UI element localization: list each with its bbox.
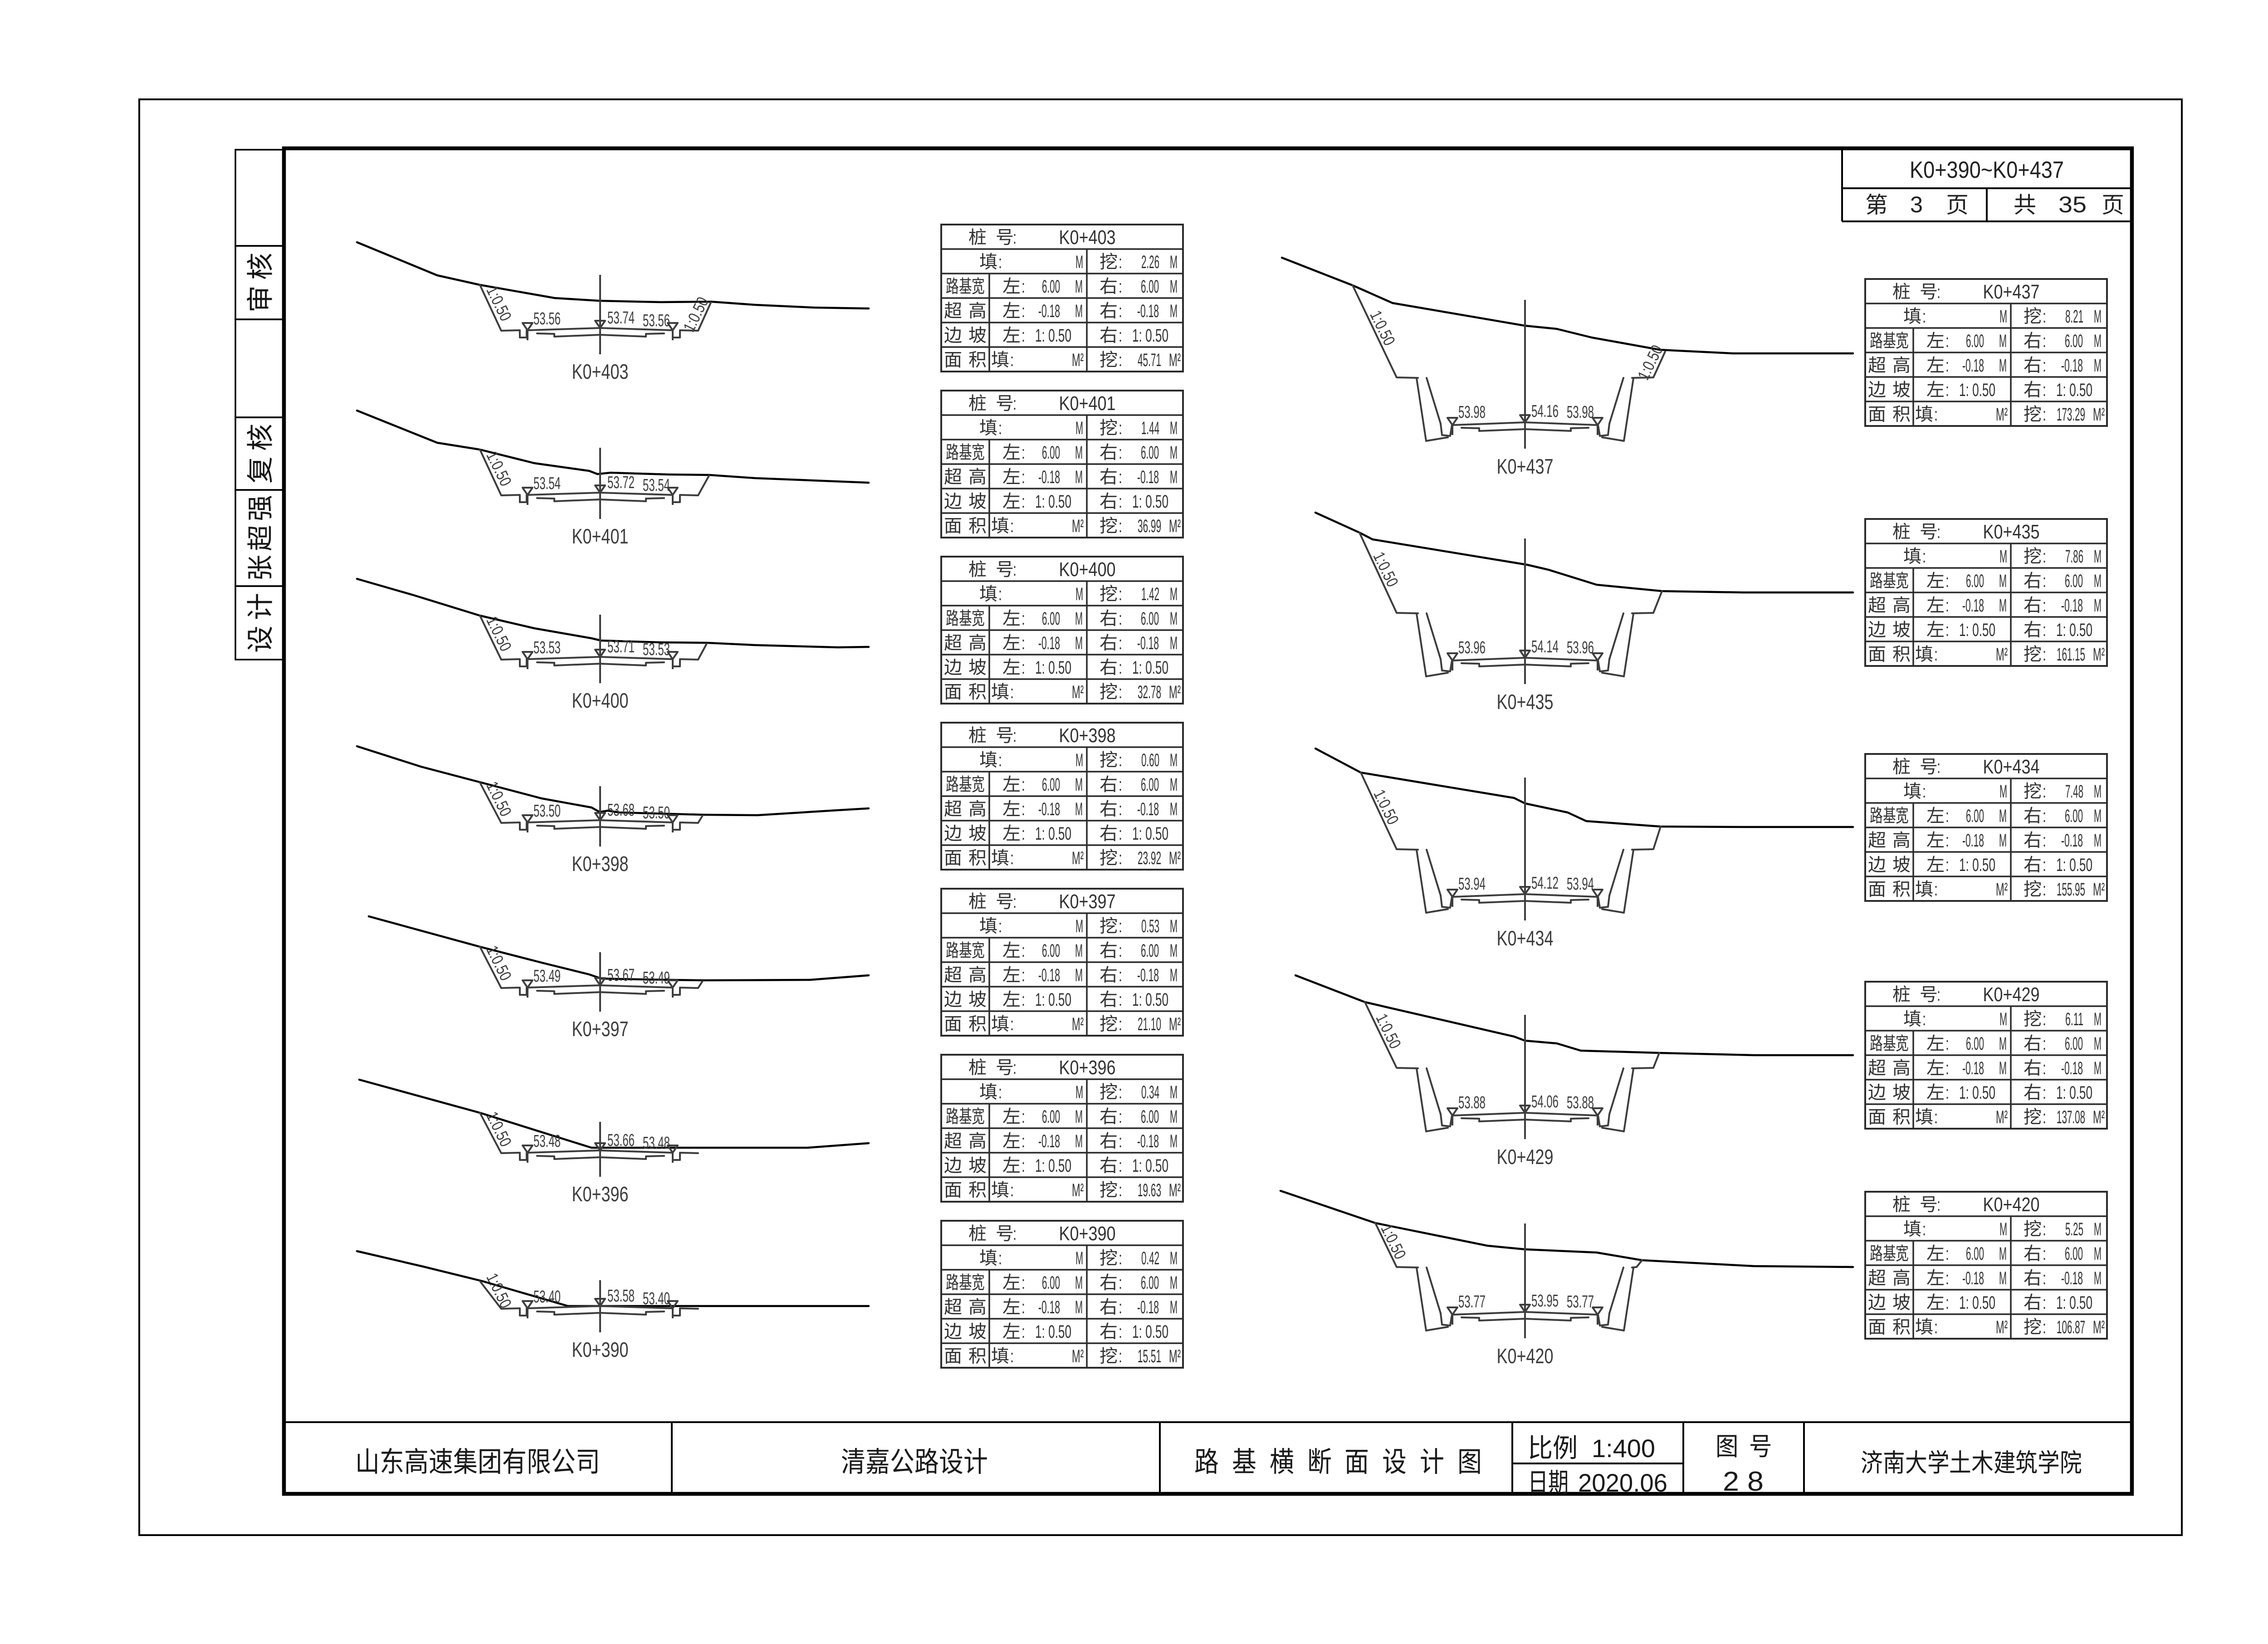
svg-text:-0.18: -0.18: [1962, 596, 1984, 616]
svg-text:M: M: [2094, 806, 2102, 826]
svg-text:53.95: 53.95: [1531, 1292, 1559, 1311]
svg-text::: :: [2043, 380, 2046, 400]
svg-text::: :: [1022, 824, 1025, 844]
svg-text:M: M: [1075, 418, 1083, 438]
svg-text::: :: [2043, 307, 2046, 327]
svg-text::: :: [2043, 880, 2046, 900]
svg-text::: :: [1937, 985, 1941, 1005]
svg-text:K0+403: K0+403: [1059, 226, 1116, 249]
svg-text::: :: [1119, 965, 1122, 985]
svg-text:M: M: [2094, 1058, 2102, 1078]
svg-text:53.68: 53.68: [607, 801, 635, 820]
svg-text::: :: [998, 750, 1002, 770]
svg-text:-0.18: -0.18: [1137, 1131, 1159, 1151]
svg-text:M: M: [1075, 467, 1083, 487]
svg-text::: :: [2043, 782, 2046, 802]
svg-text:M²: M²: [2093, 1317, 2105, 1337]
svg-text::: :: [1119, 848, 1122, 868]
svg-text::: :: [1922, 1009, 1926, 1029]
svg-text::: :: [1119, 492, 1122, 512]
svg-text:-0.18: -0.18: [1137, 633, 1159, 653]
svg-text:M: M: [1999, 1244, 2007, 1264]
svg-text::: :: [1937, 1195, 1941, 1215]
svg-text:M: M: [1170, 584, 1178, 604]
svg-text:M²: M²: [1996, 645, 2008, 665]
svg-text:137.08: 137.08: [2057, 1107, 2085, 1127]
svg-text::: :: [2043, 1058, 2046, 1078]
svg-text::: :: [1022, 326, 1025, 346]
svg-text::: :: [1022, 277, 1025, 297]
svg-text::: :: [1013, 228, 1017, 248]
svg-text:M: M: [1999, 1034, 2007, 1054]
svg-text:53.53: 53.53: [643, 640, 670, 659]
svg-text::: :: [1013, 1058, 1017, 1078]
svg-text:6.00: 6.00: [1966, 806, 1984, 826]
svg-text:6.11: 6.11: [2065, 1009, 2083, 1029]
svg-text:6.00: 6.00: [2065, 331, 2083, 351]
svg-text::: :: [1937, 757, 1941, 777]
svg-text::: :: [1119, 1014, 1122, 1034]
svg-text:7.86: 7.86: [2065, 547, 2083, 567]
svg-text::: :: [2043, 405, 2046, 425]
svg-text:1: 0.50: 1: 0.50: [1035, 492, 1071, 512]
svg-text:6.00: 6.00: [2065, 806, 2083, 826]
svg-text:M: M: [1075, 443, 1083, 463]
svg-text:6.00: 6.00: [2065, 1244, 2083, 1264]
svg-text:K0+429: K0+429: [1497, 1145, 1554, 1169]
svg-text:M: M: [1999, 331, 2007, 351]
svg-text:M: M: [1075, 609, 1083, 629]
svg-text:53.71: 53.71: [607, 637, 635, 656]
svg-text:K0+398: K0+398: [572, 852, 629, 876]
svg-text:0.60: 0.60: [1141, 750, 1159, 770]
svg-text:1: 0.50: 1: 0.50: [1035, 824, 1071, 844]
svg-text:173.29: 173.29: [2057, 405, 2085, 425]
svg-text::: :: [1022, 965, 1025, 985]
svg-text::: :: [1119, 1107, 1122, 1127]
svg-text:M: M: [1170, 750, 1178, 770]
svg-text:-0.18: -0.18: [1137, 799, 1159, 819]
svg-text::: :: [1119, 916, 1122, 936]
svg-text:M²: M²: [1169, 682, 1181, 702]
svg-text:53.53: 53.53: [533, 638, 561, 657]
svg-text:K0+434: K0+434: [1497, 926, 1554, 950]
svg-text:M: M: [2094, 331, 2102, 351]
svg-text:1: 0.50: 1: 0.50: [1959, 380, 1995, 400]
svg-text::: :: [1013, 726, 1017, 746]
svg-text:M: M: [1170, 1273, 1178, 1293]
svg-text::: :: [1119, 467, 1122, 487]
svg-text:-0.18: -0.18: [1038, 1297, 1060, 1317]
svg-text:M: M: [1999, 596, 2007, 616]
svg-text:M²: M²: [1072, 848, 1084, 868]
svg-text:-0.18: -0.18: [1962, 1268, 1984, 1288]
svg-text:K0+396: K0+396: [1059, 1057, 1116, 1079]
svg-text:1: 0.50: 1: 0.50: [1035, 326, 1071, 346]
svg-text:6.00: 6.00: [1042, 443, 1060, 463]
svg-text:7.48: 7.48: [2065, 782, 2083, 802]
svg-text:M: M: [1170, 301, 1178, 321]
svg-text:K0+397: K0+397: [572, 1017, 629, 1041]
svg-text::: :: [1013, 560, 1017, 580]
svg-text::: :: [1022, 799, 1025, 819]
svg-text:1: 0.50: 1: 0.50: [1132, 492, 1168, 512]
svg-text:M: M: [1170, 799, 1178, 819]
svg-text::: :: [2043, 1009, 2046, 1029]
svg-text:1: 0.50: 1: 0.50: [1132, 824, 1168, 844]
svg-text:35: 35: [2058, 192, 2087, 217]
svg-text:M: M: [1999, 1009, 2007, 1029]
svg-text:-0.18: -0.18: [1137, 1297, 1159, 1317]
svg-text:53.96: 53.96: [1567, 638, 1594, 657]
svg-text:K0+401: K0+401: [1059, 392, 1116, 415]
svg-text:M: M: [1170, 633, 1178, 653]
svg-text:5.25: 5.25: [2065, 1219, 2083, 1239]
svg-text:2 8: 2 8: [1723, 1466, 1764, 1497]
svg-text::: :: [1022, 990, 1025, 1010]
svg-text::: :: [1010, 1014, 1014, 1034]
svg-text:6.00: 6.00: [1141, 443, 1159, 463]
svg-text:53.88: 53.88: [1458, 1093, 1486, 1112]
svg-text::: :: [998, 584, 1002, 604]
svg-text:M: M: [1170, 775, 1178, 795]
svg-text:6.00: 6.00: [1042, 1273, 1060, 1293]
svg-text:1: 0.50: 1: 0.50: [2056, 1293, 2092, 1313]
svg-text:6.00: 6.00: [1141, 941, 1159, 961]
svg-text::: :: [1119, 633, 1122, 653]
svg-text:M: M: [2094, 831, 2102, 851]
svg-text:M: M: [1075, 965, 1083, 985]
svg-text::: :: [2043, 806, 2046, 826]
svg-text::: :: [1945, 1083, 1949, 1103]
svg-text:1: 0.50: 1: 0.50: [1132, 990, 1168, 1010]
svg-text:K0+390~K0+437: K0+390~K0+437: [1910, 157, 2064, 183]
svg-text::: :: [1922, 1219, 1926, 1239]
svg-text::: :: [1022, 609, 1025, 629]
svg-text::: :: [2043, 1034, 2046, 1054]
svg-text:M: M: [2094, 1009, 2102, 1029]
svg-text:M²: M²: [1169, 1346, 1181, 1366]
svg-text:1: 0.50: 1: 0.50: [1132, 326, 1168, 346]
svg-text:M: M: [1999, 307, 2007, 327]
svg-text::: :: [1119, 1297, 1122, 1317]
svg-text:6.00: 6.00: [1042, 775, 1060, 795]
svg-text:M²: M²: [1996, 1317, 2008, 1337]
svg-text:53.94: 53.94: [1458, 875, 1486, 894]
svg-text:-0.18: -0.18: [1038, 1131, 1060, 1151]
svg-text::: :: [1022, 941, 1025, 961]
svg-text:-0.18: -0.18: [1962, 831, 1984, 851]
svg-text:M: M: [1075, 750, 1083, 770]
svg-text::: :: [998, 1248, 1002, 1268]
svg-text:M: M: [2094, 1219, 2102, 1239]
svg-text::: :: [1013, 394, 1017, 414]
svg-text:-0.18: -0.18: [2061, 1268, 2083, 1288]
svg-text:19.63: 19.63: [1138, 1180, 1161, 1200]
svg-text::: :: [1945, 1244, 1949, 1264]
svg-text::: :: [1022, 492, 1025, 512]
svg-text::: :: [2043, 1268, 2046, 1288]
svg-text::: :: [2043, 1219, 2046, 1239]
svg-text::: :: [1922, 782, 1926, 802]
svg-text::: :: [1119, 584, 1122, 604]
svg-text::: :: [1119, 658, 1122, 678]
svg-text:M²: M²: [2093, 1107, 2105, 1127]
svg-text:53.48: 53.48: [533, 1132, 561, 1151]
svg-text:M: M: [1075, 633, 1083, 653]
svg-text:1: 0.50: 1: 0.50: [2056, 380, 2092, 400]
svg-text:K0+400: K0+400: [1059, 558, 1116, 581]
svg-text:53.74: 53.74: [607, 308, 635, 328]
svg-text:1: 0.50: 1: 0.50: [2056, 855, 2092, 875]
svg-text:M: M: [1999, 1268, 2007, 1288]
svg-text:1: 0.50: 1: 0.50: [2056, 620, 2092, 640]
svg-text:M: M: [1999, 571, 2007, 591]
svg-text:-0.18: -0.18: [1962, 356, 1984, 376]
svg-text:M: M: [1075, 941, 1083, 961]
svg-text::: :: [1119, 682, 1122, 702]
svg-text:K0+437: K0+437: [1983, 281, 2040, 303]
svg-text:53.77: 53.77: [1458, 1292, 1486, 1311]
svg-text:K0+396: K0+396: [572, 1182, 629, 1206]
svg-text:1.44: 1.44: [1141, 418, 1159, 438]
svg-text:54.16: 54.16: [1531, 402, 1559, 421]
svg-text:54.14: 54.14: [1531, 637, 1559, 656]
svg-text:M: M: [2094, 571, 2102, 591]
svg-text::: :: [1119, 750, 1122, 770]
svg-text::: :: [2043, 331, 2046, 351]
svg-text::: :: [998, 252, 1002, 272]
svg-text::: :: [1945, 331, 1949, 351]
svg-text:M: M: [2094, 596, 2102, 616]
svg-text:-0.18: -0.18: [2061, 1058, 2083, 1078]
svg-text:6.00: 6.00: [1042, 941, 1060, 961]
svg-text::: :: [1119, 443, 1122, 463]
svg-text:54.12: 54.12: [1531, 874, 1559, 893]
svg-text:M: M: [2094, 356, 2102, 376]
svg-text:M: M: [1170, 609, 1178, 629]
svg-text:M: M: [1075, 1131, 1083, 1151]
svg-text:M²: M²: [1072, 350, 1084, 370]
svg-text:2020.06: 2020.06: [1578, 1468, 1667, 1497]
svg-text::: :: [1119, 775, 1122, 795]
svg-text:M: M: [1999, 831, 2007, 851]
svg-text::: :: [1937, 282, 1941, 302]
svg-text::: :: [1022, 1107, 1025, 1127]
svg-text:M: M: [1999, 356, 2007, 376]
svg-text::: :: [1022, 1156, 1025, 1176]
svg-text::: :: [2043, 1244, 2046, 1264]
svg-text:-0.18: -0.18: [1137, 301, 1159, 321]
svg-text::: :: [2043, 1317, 2046, 1337]
svg-text:M: M: [2094, 1244, 2102, 1264]
svg-text:K0+429: K0+429: [1983, 983, 2040, 1006]
svg-text::: :: [2043, 571, 2046, 591]
svg-text:23.92: 23.92: [1138, 848, 1161, 868]
svg-text:53.67: 53.67: [607, 966, 635, 985]
svg-text:53.49: 53.49: [643, 969, 670, 988]
svg-text:M: M: [1170, 252, 1178, 272]
svg-text:M: M: [1170, 941, 1178, 961]
svg-text:6.00: 6.00: [1141, 1107, 1159, 1127]
svg-text:M: M: [1075, 301, 1083, 321]
svg-text:1: 0.50: 1: 0.50: [1132, 658, 1168, 678]
svg-text:M: M: [1075, 1248, 1083, 1268]
svg-text:K0+403: K0+403: [572, 360, 629, 383]
svg-text:15.51: 15.51: [1138, 1346, 1161, 1366]
svg-text::: :: [2043, 547, 2046, 567]
svg-text:1: 0.50: 1: 0.50: [1035, 658, 1071, 678]
svg-text:6.00: 6.00: [2065, 571, 2083, 591]
svg-text:0.53: 0.53: [1141, 916, 1159, 936]
svg-text:M: M: [1999, 806, 2007, 826]
svg-text:M: M: [1075, 1273, 1083, 1293]
svg-text:M: M: [1170, 467, 1178, 487]
svg-text:53.54: 53.54: [643, 476, 670, 495]
svg-text:32.78: 32.78: [1138, 682, 1161, 702]
svg-text::: :: [998, 1082, 1002, 1102]
svg-text::: :: [1119, 1131, 1122, 1151]
svg-text:K0+435: K0+435: [1497, 690, 1554, 714]
svg-text:1: 0.50: 1: 0.50: [2056, 1083, 2092, 1103]
svg-text:-0.18: -0.18: [1038, 633, 1060, 653]
svg-text:M: M: [1170, 916, 1178, 936]
svg-text::: :: [1945, 831, 1949, 851]
svg-text:1: 0.50: 1: 0.50: [1132, 1322, 1168, 1342]
svg-text::: :: [1934, 405, 1938, 425]
svg-text:2.26: 2.26: [1141, 252, 1159, 272]
svg-text:K0+420: K0+420: [1983, 1194, 2040, 1216]
svg-text::: :: [1119, 516, 1122, 536]
svg-text:-0.18: -0.18: [1038, 799, 1060, 819]
svg-text::: :: [1119, 301, 1122, 321]
svg-text:M: M: [2094, 547, 2102, 567]
svg-text::: :: [1945, 1034, 1949, 1054]
svg-text::: :: [1119, 350, 1122, 370]
svg-text:53.58: 53.58: [607, 1287, 635, 1306]
svg-text::: :: [1013, 892, 1017, 912]
svg-text:6.00: 6.00: [1141, 609, 1159, 629]
svg-text:106.87: 106.87: [2057, 1317, 2085, 1337]
svg-text::: :: [998, 418, 1002, 438]
svg-text:K0+435: K0+435: [1983, 521, 2040, 543]
svg-text:6.00: 6.00: [1042, 1107, 1060, 1127]
svg-text::: :: [1010, 1180, 1014, 1200]
svg-text::: :: [1010, 350, 1014, 370]
svg-text::: :: [1022, 1273, 1025, 1293]
svg-text:M²: M²: [2093, 880, 2105, 900]
svg-text:6.00: 6.00: [1966, 571, 1984, 591]
svg-text:M: M: [1170, 965, 1178, 985]
svg-text:M²: M²: [2093, 405, 2105, 425]
svg-text:53.40: 53.40: [533, 1287, 561, 1306]
svg-text:M²: M²: [1072, 516, 1084, 536]
svg-text::: :: [1022, 1297, 1025, 1317]
svg-text::: :: [2043, 1293, 2046, 1313]
svg-text::: :: [1945, 1293, 1949, 1313]
svg-text:K0+401: K0+401: [572, 524, 629, 548]
svg-text:M: M: [1999, 1219, 2007, 1239]
svg-text:6.00: 6.00: [1042, 277, 1060, 297]
svg-text:M²: M²: [1996, 880, 2008, 900]
svg-text:53.94: 53.94: [1567, 875, 1594, 894]
svg-text:M: M: [1075, 1107, 1083, 1127]
svg-text:8.21: 8.21: [2065, 307, 2083, 327]
svg-text:1: 0.50: 1: 0.50: [1959, 620, 1995, 640]
svg-text:-0.18: -0.18: [1137, 467, 1159, 487]
svg-text:M²: M²: [1996, 405, 2008, 425]
svg-text:1: 0.50: 1: 0.50: [1959, 1293, 1995, 1313]
svg-text:-0.18: -0.18: [1962, 1058, 1984, 1078]
svg-text::: :: [2043, 1083, 2046, 1103]
svg-text:M: M: [1170, 1082, 1178, 1102]
svg-text:M²: M²: [1072, 1014, 1084, 1034]
svg-text:-0.18: -0.18: [1038, 467, 1060, 487]
svg-text:K0+400: K0+400: [572, 689, 629, 712]
svg-text::: :: [1119, 1346, 1122, 1366]
svg-text:1: 0.50: 1: 0.50: [1035, 1322, 1071, 1342]
svg-text:-0.18: -0.18: [2061, 356, 2083, 376]
svg-text::: :: [1934, 1107, 1938, 1127]
svg-text:53.54: 53.54: [533, 474, 561, 493]
svg-text::: :: [2043, 620, 2046, 640]
svg-text:53.72: 53.72: [607, 473, 635, 492]
svg-text::: :: [998, 916, 1002, 936]
svg-text:-0.18: -0.18: [1137, 965, 1159, 985]
svg-text:53.40: 53.40: [643, 1289, 670, 1308]
svg-text:K0+397: K0+397: [1059, 890, 1116, 913]
svg-text:53.50: 53.50: [643, 803, 670, 822]
svg-text:M: M: [1075, 277, 1083, 297]
svg-text:53.50: 53.50: [533, 802, 561, 821]
svg-text:M²: M²: [2093, 645, 2105, 665]
svg-text:53.98: 53.98: [1567, 403, 1594, 422]
svg-text:6.00: 6.00: [1966, 1244, 1984, 1264]
svg-text:M: M: [2094, 1034, 2102, 1054]
svg-text::: :: [2043, 645, 2046, 665]
svg-text::: :: [1945, 806, 1949, 826]
svg-text::: :: [1945, 380, 1949, 400]
svg-text:6.00: 6.00: [1141, 775, 1159, 795]
svg-text::: :: [2043, 596, 2046, 616]
svg-text:M²: M²: [1169, 516, 1181, 536]
svg-text::: :: [1010, 1346, 1014, 1366]
svg-text:1: 0.50: 1: 0.50: [1035, 1156, 1071, 1176]
svg-text:161.15: 161.15: [2057, 645, 2085, 665]
svg-text:M: M: [1170, 418, 1178, 438]
svg-text::: :: [1934, 880, 1938, 900]
svg-text:53.56: 53.56: [643, 311, 670, 330]
svg-text:M²: M²: [1072, 1180, 1084, 1200]
svg-text:53.77: 53.77: [1567, 1292, 1594, 1311]
svg-text:K0+437: K0+437: [1497, 455, 1554, 478]
svg-text:155.95: 155.95: [2057, 880, 2085, 900]
svg-text:6.00: 6.00: [2065, 1034, 2083, 1054]
svg-text:M²: M²: [1072, 1346, 1084, 1366]
svg-text:K0+398: K0+398: [1059, 724, 1116, 747]
svg-text:45.71: 45.71: [1138, 350, 1161, 370]
svg-text:53.49: 53.49: [533, 967, 561, 986]
svg-text:M: M: [1999, 1058, 2007, 1078]
svg-text:M²: M²: [1169, 1014, 1181, 1034]
svg-text:M: M: [1170, 277, 1178, 297]
svg-text:M: M: [1075, 1082, 1083, 1102]
svg-text::: :: [1119, 799, 1122, 819]
svg-text::: :: [1119, 1156, 1122, 1176]
svg-text::: :: [1022, 301, 1025, 321]
svg-text:M²: M²: [1072, 682, 1084, 702]
svg-text::: :: [1119, 418, 1122, 438]
